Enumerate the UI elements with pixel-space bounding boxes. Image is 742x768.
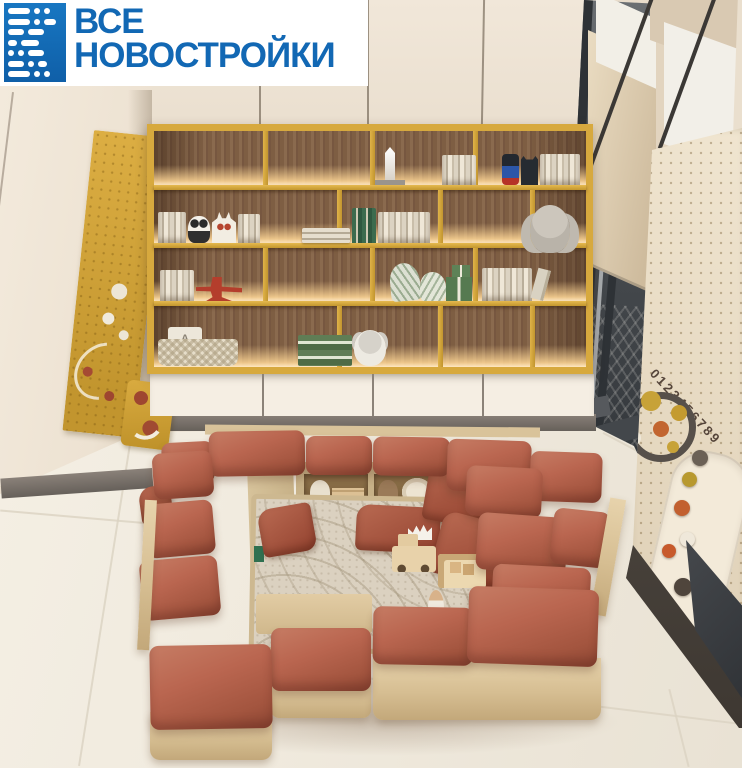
dino-toy [388,262,421,302]
track-ball [682,472,697,487]
toy-rocket [385,147,395,180]
brand-name-line2: НОВОСТРОЙКИ [74,39,335,73]
seat-cushion [373,606,474,666]
shelf-divider [530,306,535,367]
drawer-gap [262,374,264,416]
track-ball [692,450,708,466]
seat-cushion [465,465,544,519]
seat-cushion [373,436,451,476]
brand-name: ВСЕ НОВОСТРОЙКИ [74,5,335,73]
tile-grout-line [668,689,689,767]
brand-mark-row [8,19,62,25]
shelf-books [378,212,430,243]
brand-name-line1: ВСЕ [74,5,335,39]
tile-grout-line [0,509,150,524]
seat-cushion [151,450,214,500]
toy-rocket-base [375,180,405,185]
toy-block [450,562,461,573]
shelf-divider [263,131,268,185]
gear-icon [667,441,679,453]
shelf-books [238,214,260,243]
green-books [352,208,376,243]
bookshelf: A [147,124,593,374]
shelf-divider [438,190,443,243]
bunny-figure [212,212,236,243]
brand-mark-row [8,29,62,35]
gear-icon [671,405,687,421]
brand-mark-icon [4,3,66,82]
drawer-gap [372,374,374,416]
panda-figure [188,216,210,243]
dino-toy [420,272,446,301]
seat-cushion [209,430,306,477]
shelf-books [158,212,186,243]
gear-knob-icon [102,312,115,325]
seat-cushion [271,628,371,691]
batman-figure [521,156,538,185]
track-ball [674,500,690,516]
shelf-books [540,154,580,185]
cabinet-seam [0,92,14,440]
playroom-photo: A 0123456789 [0,0,742,768]
seat-cushion [149,644,272,730]
shelf-divider [473,248,478,301]
wicker-basket [158,339,238,366]
shelf-books [442,155,476,185]
brand-mark-row [8,61,62,67]
brand-watermark: ВСЕ НОВОСТРОЙКИ [0,0,368,86]
brand-mark-row [8,71,62,77]
green-crates [298,335,352,366]
stacked-books [302,228,350,243]
shelf-divider [263,248,268,301]
cabinet-seam [481,0,485,124]
drawer-gap [482,374,484,416]
velvet-pillow [256,502,318,559]
elephant-plush [530,205,570,253]
superman-figure [502,154,519,185]
gear-knob-icon [110,283,128,301]
gift-box [446,277,472,301]
shelf-books [160,270,194,301]
track-ball [674,578,692,596]
seat-cushion [306,436,372,475]
brand-mark-row [8,40,62,46]
shelf-divider [438,306,443,367]
toy-train-engine [392,546,436,572]
shelf-board [154,301,586,306]
gear-icon [641,391,661,411]
toy-block [463,564,474,575]
shelf-divider [370,248,375,301]
ottoman-base [373,658,601,720]
gear-knob-icon [118,330,129,341]
seat-cushion [467,586,600,667]
brand-mark-row [8,8,62,14]
drawer-row [150,374,594,416]
shelf-books [482,268,532,301]
red-knob-icon [104,391,115,402]
shelf-board [154,185,586,190]
koala-plush [354,330,386,366]
track-ball [662,544,676,558]
brand-mark-row [8,50,62,56]
clock-center [653,421,669,437]
shelf-divider [370,131,375,185]
